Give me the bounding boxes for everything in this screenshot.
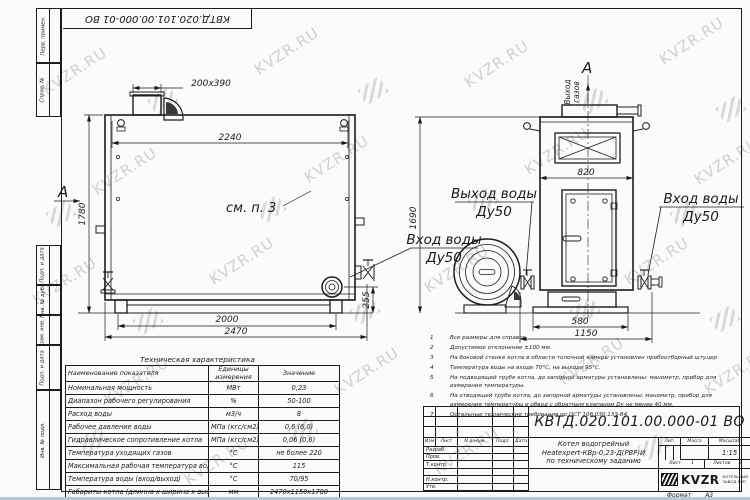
note-number: 1: [430, 334, 450, 342]
product-name-line1: Котел водогрейный: [558, 440, 629, 448]
margin-box-sprav-n: Справ. №: [36, 63, 61, 117]
margin-box-perv-primen: Перв. примен.: [36, 8, 61, 63]
margin-label: Перв. примен.: [40, 16, 46, 55]
note-text: На подводящей трубе котла, до запорной а…: [450, 374, 728, 391]
dim-right-height: 1690: [409, 206, 419, 229]
table-row: Температура уходящих газов°Сне более 220: [66, 447, 340, 460]
dim-duct: 200х390: [191, 79, 231, 89]
gas-outlet-label-2: газов: [572, 81, 581, 103]
spec-units: °С: [209, 447, 259, 460]
spec-value: 115: [259, 460, 340, 473]
view-arrow-label-left: А: [57, 183, 68, 201]
stamp-row-nkontr: Н.контр.: [424, 476, 528, 483]
dim-front-width: 820: [577, 168, 594, 178]
note-number: 2: [430, 344, 450, 352]
spec-name: Рабочее давление воды: [66, 421, 209, 434]
table-row: Температура воды (вход/выход)°С70/95: [66, 473, 340, 486]
stamp-row-prov: Пров.: [424, 454, 528, 461]
spec-units: °С: [209, 473, 259, 486]
note-item: 4Температура воды на входе 70°С, на выхо…: [430, 364, 728, 372]
drawing-sheet: KVZR.RU KVZR.RU KVZR.RU KVZR.RU KVZR.RU …: [0, 0, 750, 500]
spec-table-title: Техническая характеристика: [65, 355, 330, 365]
stamp-header-cell: Подп.: [493, 438, 514, 447]
stamp-row-razrab: Разраб.: [424, 447, 528, 454]
change-record-row: [424, 407, 528, 417]
table-row: Рабочее давление водыМПа (кгс/см2)0,6 (6…: [66, 421, 340, 434]
note-item: 1Все размеры для справок: [430, 334, 728, 342]
water-inlet-right-label: Вход воды: [663, 191, 739, 207]
note-number: 4: [430, 364, 450, 372]
empty-cell: [529, 469, 658, 491]
doc-number: КВТД.020.101.00.000-01 ВО: [529, 407, 750, 438]
section-note: см. п. 3: [226, 201, 276, 216]
spec-units: %: [209, 395, 259, 408]
note-number: 3: [430, 354, 450, 362]
stamp-row-label: Утв.: [424, 484, 458, 491]
stamp-header-cell: Изм: [424, 438, 436, 447]
spec-name: Расход воды: [66, 408, 209, 421]
product-name-line3: по техническому заданию: [546, 457, 641, 465]
note-text: Все размеры для справок: [450, 334, 728, 342]
water-inlet-right-dy: Ду50: [682, 209, 719, 225]
spec-value: 0,6 (6,0): [259, 421, 340, 434]
spec-value: 50-100: [259, 395, 340, 408]
margin-box-podp-data-1: Подп. и дата: [36, 245, 61, 285]
water-outlet-dy: Ду50: [475, 204, 512, 220]
spec-name: Номинальная мощность: [66, 382, 209, 395]
stamp-header-cell: N докум.: [458, 438, 493, 447]
kvzr-logo-icon: [661, 473, 678, 486]
margin-box-podp-data-2: Подп. и дата: [36, 345, 61, 390]
change-record-row: [424, 427, 528, 437]
note-item: 3На боковой стенке котла в области топоч…: [430, 354, 728, 362]
dim-outlet-offset: 255: [362, 291, 372, 308]
dim-overall-width: 2470: [225, 327, 248, 337]
spec-units: м3/ч: [209, 408, 259, 421]
table-row: Гидравлическое сопротивление котлаМПа (к…: [66, 434, 340, 447]
spec-name: Диапазон рабочего регулирования: [66, 395, 209, 408]
margin-label: Подп. и дата: [40, 247, 46, 282]
change-record-row: [424, 417, 528, 427]
scale-value: 1:15: [709, 446, 750, 460]
company-logo: KVZR КОТЕЛЬНЫЙ ЗАВОД РЭП: [659, 469, 750, 492]
sheet-label: Лист: [669, 461, 681, 466]
spec-units: МВт: [209, 382, 259, 395]
sheets-cell: Листов 2: [705, 460, 750, 468]
spec-value: 8: [259, 408, 340, 421]
title-block-scale-area: Лит. Масса Масштаб 1:15 Лист 1: [659, 438, 750, 491]
margin-label: Взам. инв. №: [40, 316, 46, 344]
spec-name: Максимальная рабочая температура воды: [66, 460, 209, 473]
margin-box-inv-podl: Инв. № подл.: [36, 390, 61, 490]
stamp-row-tkontr: Т.контр.: [424, 461, 528, 468]
note-item: 5На подводящей трубе котла, до запорной …: [430, 374, 728, 391]
margin-label: Подп. и дата: [40, 350, 46, 385]
water-inlet-left-dy: Ду50: [425, 250, 462, 266]
company-subtitle: КОТЕЛЬНЫЙ ЗАВОД РЭП: [723, 475, 749, 484]
spec-col-name: Наименование показателя: [66, 366, 209, 382]
stamp-row-label: Пров.: [424, 454, 458, 461]
stamp-row-label: Разраб.: [424, 447, 458, 454]
margin-box-inv-dubl: Инв. № дубл.: [36, 285, 61, 315]
note-text: Температура воды на входе 70°С, на выход…: [450, 364, 728, 372]
spec-value: не более 220: [259, 447, 340, 460]
note-text: Допустимое отклонение ±100 мм.: [450, 344, 728, 352]
stamp-row-label: Н.контр.: [424, 476, 458, 483]
company-sub2: ЗАВОД РЭП: [723, 479, 746, 484]
table-row: Номинальная мощностьМВт0,23: [66, 382, 340, 395]
dim-front-base: 580: [571, 317, 588, 327]
margin-label: Инв. № дубл.: [40, 286, 46, 314]
product-name-line2: Heatexpert-КВр-0,23-Д(РВР)И: [542, 449, 645, 457]
dim-base-width: 2000: [216, 315, 239, 325]
margin-label: Справ. №: [40, 77, 46, 102]
table-row: Диапазон рабочего регулирования%50-100: [66, 395, 340, 408]
spec-name: Гидравлическое сопротивление котла: [66, 434, 209, 447]
stamp-header-row: Изм Лист N докум. Подп. Дата: [424, 438, 528, 447]
spec-value: 70/95: [259, 473, 340, 486]
stamp-row-blank: [424, 469, 528, 476]
note-text: На боковой стенке котла в области топочн…: [450, 354, 728, 362]
lit-cells: [659, 446, 681, 460]
title-block: Изм Лист N докум. Подп. Дата Разраб. Про…: [423, 406, 740, 492]
company-name: KVZR: [681, 473, 720, 487]
spec-units: МПа (кгс/см2): [209, 421, 259, 434]
dim-left-height: 1780: [78, 202, 88, 225]
spec-value: 0,06 (0,6): [259, 434, 340, 447]
view-arrow-label-top: А: [581, 59, 592, 77]
stamp-row-label: Т.контр.: [424, 461, 458, 468]
margin-label: Инв. № подл.: [40, 422, 46, 458]
product-name-cell: Котел водогрейный Heatexpert-КВр-0,23-Д(…: [529, 438, 659, 491]
sheet-value: 1: [691, 461, 694, 466]
spec-name: Температура уходящих газов: [66, 447, 209, 460]
spec-units: °С: [209, 460, 259, 473]
doc-number-rotated-box: КВТД.020.101.00.000-01 ВО: [63, 8, 252, 29]
title-block-right: КВТД.020.101.00.000-01 ВО Котел водогрей…: [529, 407, 750, 491]
spec-col-value: Значение: [259, 366, 340, 382]
margin-box-vzam-inv: Взам. инв. №: [36, 315, 61, 345]
mass-label: Масса: [681, 438, 709, 446]
sheets-value: 2: [739, 461, 742, 466]
spec-col-units: Единицы измерения: [209, 366, 259, 382]
spec-units: МПа (кгс/см2): [209, 434, 259, 447]
table-row: Максимальная рабочая температура воды°С1…: [66, 460, 340, 473]
note-number: 5: [430, 374, 450, 391]
stamp-row-utv: Утв.: [424, 484, 528, 491]
stamp-header-cell: Дата: [514, 438, 528, 447]
sheets-label: Листов: [713, 461, 730, 466]
sheet-cell: Лист 1: [659, 460, 705, 468]
water-inlet-left-label: Вход воды: [406, 232, 482, 248]
dim-top-width: 2240: [219, 133, 242, 143]
spec-value: 0,23: [259, 382, 340, 395]
spec-name: Температура воды (вход/выход): [66, 473, 209, 486]
gas-outlet-label-1: Выход: [563, 79, 572, 104]
mass-value: [681, 446, 709, 460]
spec-header-row: Наименование показателя Единицы измерени…: [66, 366, 340, 382]
note-item: 2Допустимое отклонение ±100 мм.: [430, 344, 728, 352]
spec-table: Техническая характеристика Наименование …: [65, 355, 330, 499]
lit-label: Лит.: [659, 438, 681, 446]
scale-label: Масштаб: [709, 438, 750, 446]
doc-number-rotated: КВТД.020.101.00.000-01 ВО: [85, 13, 230, 24]
table-row: Расход водым3/ч8: [66, 408, 340, 421]
water-outlet-label: Выход воды: [451, 186, 537, 202]
title-block-left: Изм Лист N докум. Подп. Дата Разраб. Про…: [424, 407, 529, 491]
stamp-header-cell: Лист: [436, 438, 458, 447]
